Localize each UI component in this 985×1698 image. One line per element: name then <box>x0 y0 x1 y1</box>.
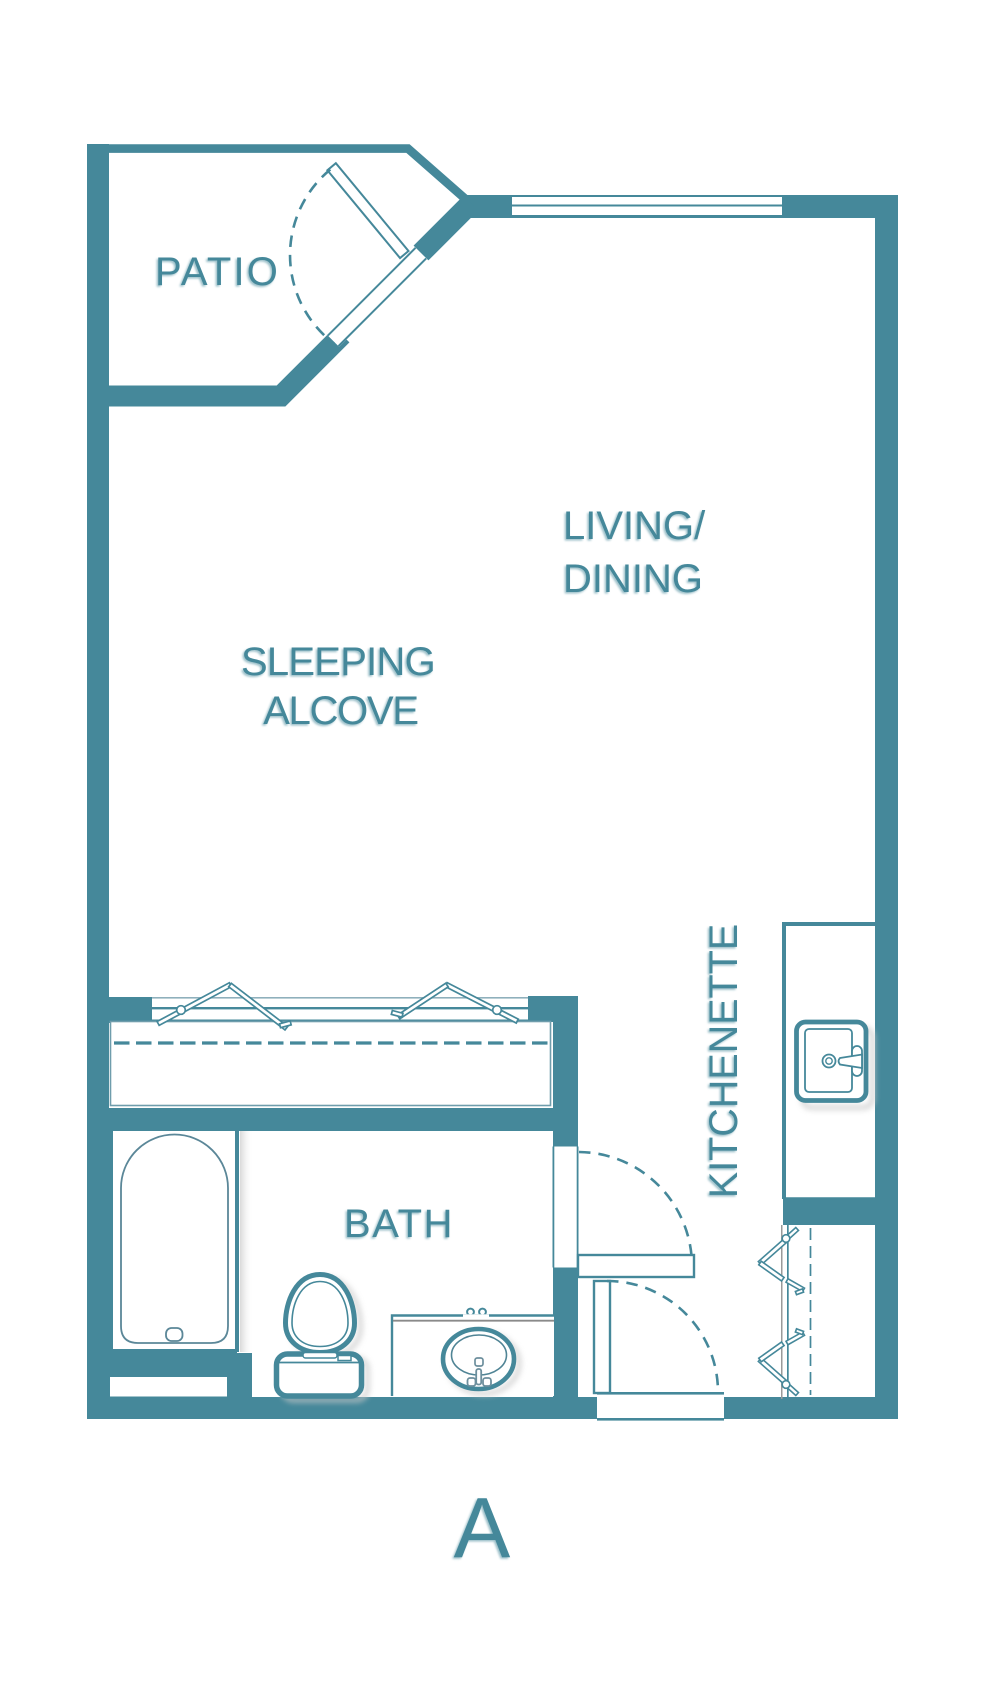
svg-text:BATH: BATH <box>344 1202 454 1246</box>
svg-text:LIVING/: LIVING/ <box>563 504 706 548</box>
svg-text:KITCHENETTE: KITCHENETTE <box>702 924 746 1198</box>
svg-text:A: A <box>454 1481 511 1576</box>
svg-text:SLEEPING: SLEEPING <box>241 640 435 684</box>
svg-text:PATIO: PATIO <box>155 250 280 294</box>
svg-text:ALCOVE: ALCOVE <box>263 689 418 733</box>
svg-text:DINING: DINING <box>563 557 703 601</box>
